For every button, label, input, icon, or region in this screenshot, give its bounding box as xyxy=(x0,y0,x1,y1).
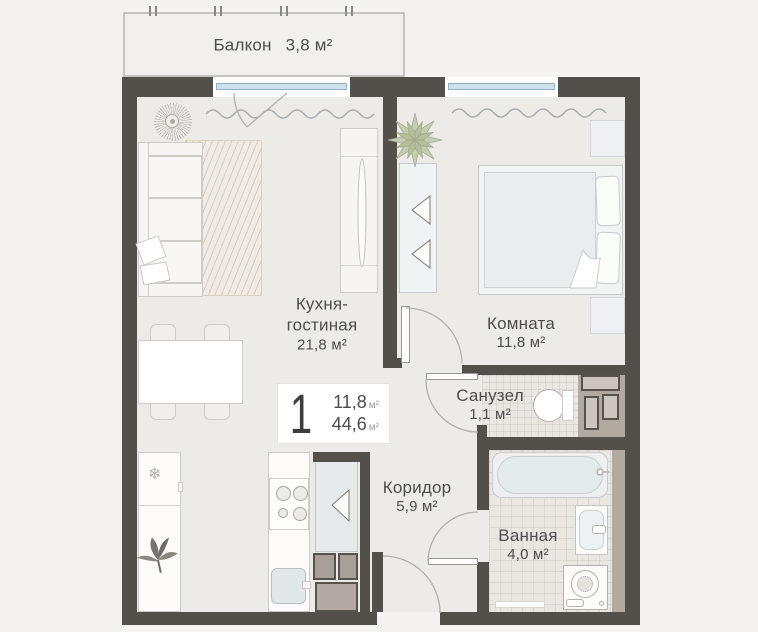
bath-sink-faucet xyxy=(592,525,606,534)
wc-area: 1,1 м² xyxy=(456,406,524,425)
balcony-railing-tick xyxy=(214,6,216,16)
fridge-snowflake-icon: ❄ xyxy=(148,464,161,484)
wall-top xyxy=(350,77,445,97)
wall-divider-foot xyxy=(383,358,402,368)
corridor-label: Коридор 5,9 м² xyxy=(383,477,452,517)
bathroom-name: Ванная xyxy=(498,525,557,546)
balcony-railing-tick xyxy=(286,6,288,16)
kitchen-living-label: Кухня- гостиная 21,8 м² xyxy=(287,293,358,354)
wall-wc-stub xyxy=(477,425,487,437)
wc-door-leaf xyxy=(426,373,478,380)
stove-burner xyxy=(293,486,308,501)
ceiling-light-dot xyxy=(170,119,175,124)
stove-burner xyxy=(278,508,288,518)
bathroom-label: Ванная 4,0 м² xyxy=(498,525,557,565)
washing-machine-knob xyxy=(599,601,604,606)
hall-cabinet xyxy=(315,458,358,552)
pillow xyxy=(595,232,621,285)
bed-mattress xyxy=(484,172,596,288)
entrance-door-leaf xyxy=(372,552,383,612)
shaft-block xyxy=(584,396,599,430)
kitchen-living-name-line2: гостиная xyxy=(287,315,358,336)
balcony-railing-tick xyxy=(155,6,157,16)
kitchen-faucet xyxy=(302,581,311,589)
room-name: Комната xyxy=(487,313,555,334)
unit-total-area-unit: м² xyxy=(369,422,379,433)
balcony-railing-tick xyxy=(280,6,282,16)
unit-room-area: 11,8 xyxy=(333,392,367,413)
balcony-name: Балкон xyxy=(213,35,271,54)
kitchen-sink xyxy=(271,568,306,604)
unit-room-area-unit: м² xyxy=(369,400,379,411)
stove-burner xyxy=(276,486,291,501)
shaft-block xyxy=(581,375,620,391)
floor-plan: { "rooms": { "balcony": {"name": "Балкон… xyxy=(0,0,758,632)
tv-cabinet xyxy=(340,128,378,293)
stove-burner xyxy=(293,507,307,521)
bathtub-inner xyxy=(497,456,603,494)
wall-kitchen-room-divider xyxy=(383,97,397,363)
wall-bath-left xyxy=(477,450,489,510)
room-wardrobe xyxy=(399,163,437,293)
window-room-glass xyxy=(448,83,555,90)
bath-mat xyxy=(495,601,545,608)
balcony-label: Балкон3,8 м² xyxy=(213,34,332,55)
unit-info-badge: 1 11,8 м² 44,6 м² xyxy=(277,383,390,444)
kitchen-living-name-line1: Кухня- xyxy=(287,293,358,314)
room-area: 11,8 м² xyxy=(487,334,555,353)
balcony-railing-tick xyxy=(345,6,347,16)
wall-kitchen-hall xyxy=(360,452,370,612)
balcony-railing-tick xyxy=(220,6,222,16)
sofa-cushion xyxy=(148,241,202,283)
washing-machine-tray xyxy=(566,599,584,607)
unit-room-area-row: 11,8 м² xyxy=(333,392,379,413)
bath-door-leaf xyxy=(428,558,478,565)
nightstand xyxy=(590,297,625,334)
corridor-name: Коридор xyxy=(383,477,452,498)
nightstand xyxy=(590,120,625,157)
sofa-cushion xyxy=(148,156,202,198)
wall-room-bottom xyxy=(462,365,640,375)
tv-cabinet-divider xyxy=(341,156,377,157)
wc-name: Санузел xyxy=(456,385,524,406)
washing-machine-drum-inner xyxy=(577,576,593,592)
room-label: Комната 11,8 м² xyxy=(487,313,555,353)
storage-box xyxy=(315,582,358,612)
storage-box xyxy=(313,553,336,580)
wall-right xyxy=(625,77,640,625)
room-door-leaf xyxy=(401,306,410,363)
corridor-area: 5,9 м² xyxy=(383,498,452,517)
wall-bottom xyxy=(122,612,377,625)
wall-top xyxy=(122,77,213,97)
bathroom-area: 4,0 м² xyxy=(498,546,557,565)
unit-total-area: 44,6 xyxy=(332,414,367,435)
toilet-bowl xyxy=(533,389,565,422)
wall-bath-left xyxy=(477,562,489,612)
unit-total-area-row: 44,6 м² xyxy=(332,414,379,435)
duct-strip xyxy=(612,450,625,612)
wc-label: Санузел 1,1 м² xyxy=(456,385,524,425)
balcony-railing-tick xyxy=(351,6,353,16)
balcony-railing-tick xyxy=(149,6,151,16)
shaft-block xyxy=(602,394,619,420)
fridge-handle xyxy=(178,482,183,492)
kitchen-living-area: 21,8 м² xyxy=(287,336,358,355)
unit-number: 1 xyxy=(289,386,313,442)
wall-wc-bottom xyxy=(477,437,625,450)
wall-left xyxy=(122,77,137,625)
balcony-area: 3,8 м² xyxy=(286,35,333,54)
wall-bottom xyxy=(440,612,640,625)
storage-box xyxy=(338,553,358,580)
toilet-tank xyxy=(562,390,574,421)
pillow xyxy=(595,176,621,227)
dining-table xyxy=(138,340,243,404)
sofa-cushion xyxy=(148,198,202,241)
fridge-divider xyxy=(139,505,180,506)
tv-cabinet-divider xyxy=(341,265,377,266)
window-kitchen-glass xyxy=(216,83,347,90)
